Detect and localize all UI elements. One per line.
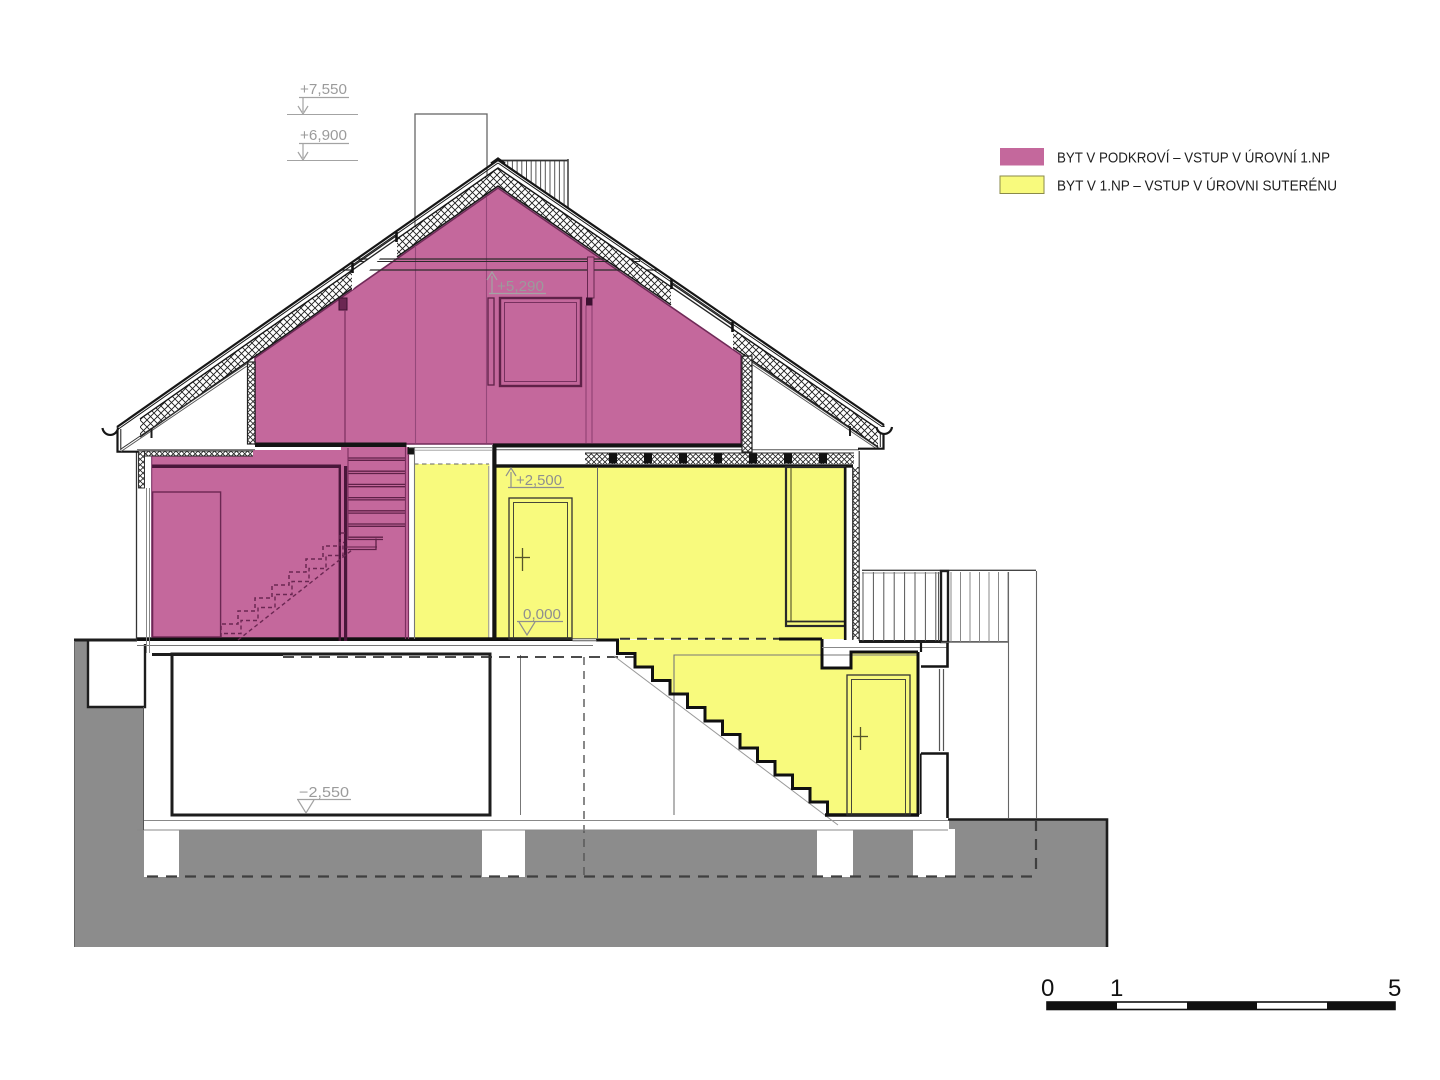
svg-text:5: 5 — [1388, 975, 1401, 1002]
svg-text:−2,550: −2,550 — [299, 785, 349, 801]
svg-text:+2,500: +2,500 — [516, 473, 562, 489]
svg-text:+7,550: +7,550 — [300, 82, 347, 98]
svg-text:0,000: 0,000 — [523, 607, 561, 623]
svg-text:+6,900: +6,900 — [300, 128, 347, 144]
svg-text:0: 0 — [1041, 975, 1054, 1002]
svg-text:BYT V PODKROVÍ – VSTUP V ÚROVN: BYT V PODKROVÍ – VSTUP V ÚROVNÍ 1.NP — [1057, 150, 1330, 167]
svg-text:BYT V 1.NP – VSTUP V ÚROVNI SU: BYT V 1.NP – VSTUP V ÚROVNI SUTERÉNU — [1057, 178, 1337, 195]
svg-text:1: 1 — [1110, 975, 1123, 1002]
svg-text:+5,290: +5,290 — [497, 279, 544, 295]
